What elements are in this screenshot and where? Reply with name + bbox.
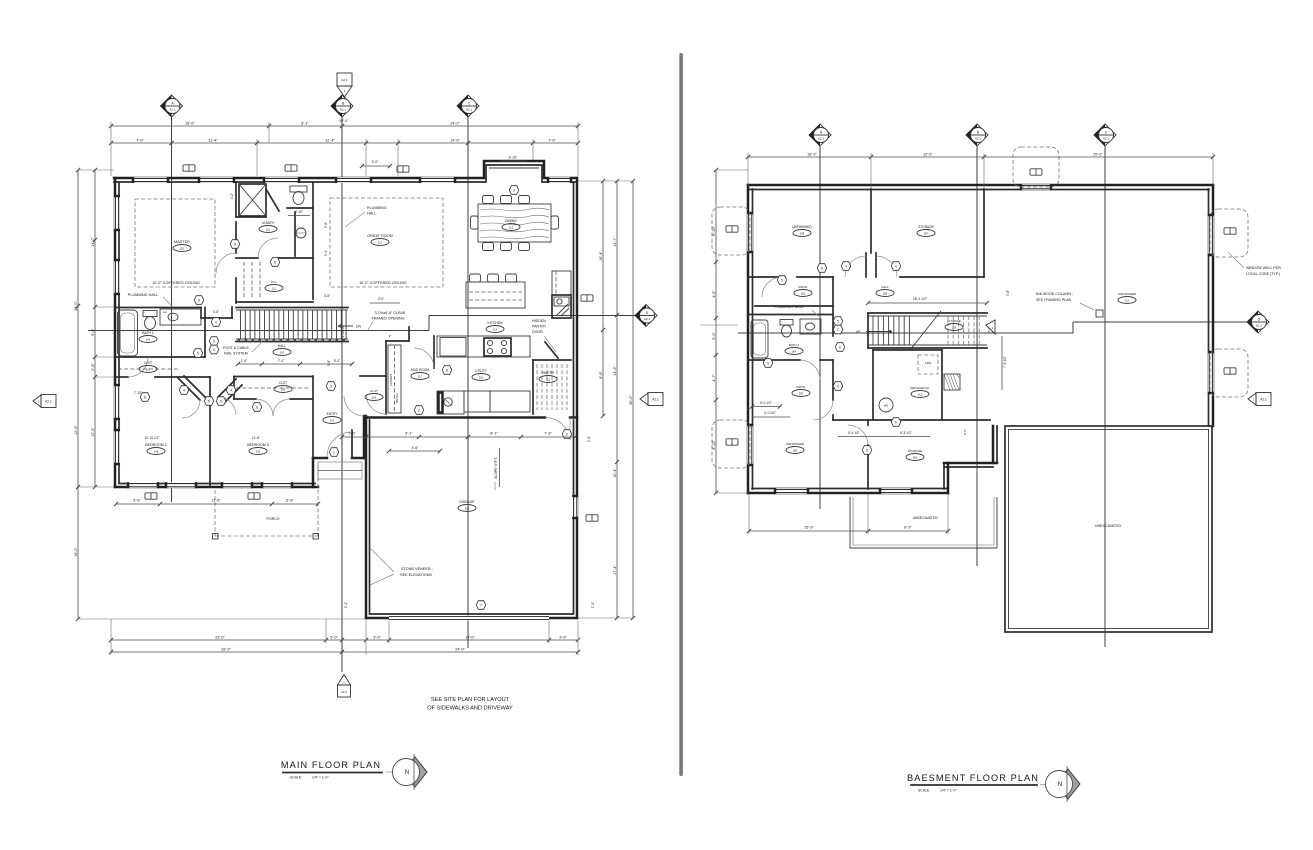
svg-text:112: 112: [378, 240, 383, 244]
svg-text:A2.1: A2.1: [975, 137, 982, 141]
svg-text:5'-0": 5'-0": [91, 328, 95, 336]
svg-text:2: 2: [566, 432, 568, 436]
svg-text:UNDECAVATED: UNDECAVATED: [913, 516, 938, 520]
svg-text:10'-10 1/2": 10'-10 1/2": [144, 436, 159, 440]
svg-text:7'-10": 7'-10": [134, 391, 142, 395]
svg-text:MIR: MIR: [163, 312, 167, 314]
svg-text:MECHANICAL: MECHANICAL: [910, 386, 930, 390]
svg-text:106: 106: [281, 387, 286, 391]
svg-text:6: 6: [256, 405, 258, 409]
svg-text:SEE FRAMING PLAN: SEE FRAMING PLAN: [1036, 298, 1072, 302]
svg-text:2'-4": 2'-4": [344, 602, 348, 608]
svg-text:CLST: CLST: [370, 389, 378, 393]
svg-text:OF SIDEWALKS AND DRIVEWAY: OF SIDEWALKS AND DRIVEWAY: [427, 706, 513, 712]
svg-text:24'-2": 24'-2": [450, 122, 460, 126]
svg-text:A2.1: A2.1: [45, 400, 52, 404]
svg-text:1: 1: [333, 450, 335, 454]
svg-text:5: 5: [213, 339, 215, 343]
svg-text:8'-8": 8'-8": [599, 371, 603, 379]
svg-text:105: 105: [256, 449, 261, 453]
svg-text:UNFINISHED: UNFINISHED: [786, 442, 805, 446]
svg-text:009: 009: [883, 291, 888, 295]
svg-text:SCALE:: SCALE:: [918, 789, 930, 793]
svg-text:5: 5: [208, 399, 210, 403]
svg-text:3'-8": 3'-8": [324, 222, 328, 228]
svg-text:50'-0": 50'-0": [629, 395, 633, 405]
svg-text:2: 2: [418, 408, 420, 412]
svg-text:4'-7": 4'-7": [712, 374, 716, 382]
svg-text:18'-0": 18'-0": [185, 122, 195, 126]
svg-text:5: 5: [781, 278, 783, 282]
svg-text:GARAGE: GARAGE: [459, 500, 475, 504]
svg-text:24'-0": 24'-0": [455, 648, 465, 652]
svg-text:110: 110: [266, 227, 271, 231]
svg-text:3'-0⅛x6'-8" CLEAR: 3'-0⅛x6'-8" CLEAR: [375, 311, 406, 315]
svg-text:18'-1 1/2": 18'-1 1/2": [913, 297, 928, 301]
svg-text:8'-9": 8'-9": [904, 526, 912, 530]
svg-text:28'-0": 28'-0": [221, 648, 231, 652]
svg-text:14'-3": 14'-3": [613, 366, 617, 376]
svg-text:3'-8": 3'-8": [324, 294, 330, 298]
svg-text:007: 007: [924, 231, 929, 235]
svg-text:8'-5 1/2": 8'-5 1/2": [900, 431, 912, 435]
svg-text:4: 4: [215, 320, 217, 324]
svg-text:6: 6: [837, 384, 839, 388]
svg-text:UNFIN.: UNFIN.: [798, 285, 808, 289]
svg-text:GREAT ROOM: GREAT ROOM: [367, 234, 393, 238]
svg-text:52'-0": 52'-0": [339, 119, 349, 123]
svg-text:5: 5: [197, 351, 199, 355]
svg-text:MUD ROOM: MUD ROOM: [411, 368, 429, 372]
svg-text:18'-0": 18'-0": [465, 636, 475, 640]
svg-text:005: 005: [801, 291, 806, 295]
svg-text:4: 4: [230, 388, 232, 392]
svg-text:RAIL SYSTEM: RAIL SYSTEM: [224, 352, 248, 356]
svg-text:A2.1: A2.1: [818, 137, 825, 141]
svg-text:5: 5: [767, 361, 769, 365]
svg-text:10'-4": 10'-4": [613, 468, 617, 478]
svg-text:LOCKERS: LOCKERS: [389, 374, 393, 387]
svg-text:8'-1": 8'-1": [490, 432, 498, 436]
svg-text:107: 107: [146, 367, 151, 371]
svg-text:3'-8": 3'-8": [1006, 290, 1010, 296]
svg-text:A2.1: A2.1: [340, 108, 347, 112]
svg-text:12'-5": 12'-5": [923, 153, 933, 157]
svg-text:5'-8": 5'-8": [286, 499, 294, 503]
svg-text:12'-4": 12'-4": [325, 139, 335, 143]
svg-text:003: 003: [799, 391, 804, 395]
svg-text:1/4" = 1'-0": 1/4" = 1'-0": [940, 789, 957, 793]
svg-text:117: 117: [418, 374, 423, 378]
svg-text:10'-0" COFFERED CEILING: 10'-0" COFFERED CEILING: [152, 281, 200, 285]
svg-text:BAESMENT FLOOR PLAN: BAESMENT FLOOR PLAN: [907, 773, 1039, 783]
svg-text:UNFINISHED: UNFINISHED: [792, 225, 812, 229]
svg-text:A2.1: A2.1: [466, 108, 473, 112]
svg-text:HIDDEN: HIDDEN: [532, 319, 546, 323]
svg-text:5: 5: [330, 384, 332, 388]
svg-text:DOOR: DOOR: [532, 330, 543, 334]
svg-text:BEDROOM 3: BEDROOM 3: [247, 443, 269, 447]
svg-text:PANTRY: PANTRY: [532, 325, 547, 329]
svg-text:6'-1": 6'-1": [405, 432, 413, 436]
svg-text:N: N: [405, 770, 409, 776]
svg-text:23'-0": 23'-0": [215, 636, 225, 640]
svg-text:002: 002: [793, 448, 798, 452]
svg-text:M.BATH: M.BATH: [262, 221, 275, 225]
svg-text:17'-4": 17'-4": [613, 565, 617, 575]
svg-text:4: 4: [895, 264, 897, 268]
svg-text:KITCHEN: KITCHEN: [488, 321, 503, 325]
svg-text:11'-8": 11'-8": [252, 436, 260, 440]
svg-text:101: 101: [180, 246, 185, 250]
svg-text:5'-0 1/2": 5'-0 1/2": [760, 401, 772, 405]
svg-text:15'-9": 15'-9": [804, 526, 814, 530]
svg-text:102: 102: [372, 395, 377, 399]
svg-text:5: 5: [821, 266, 823, 270]
svg-text:111: 111: [1125, 298, 1129, 302]
svg-text:STONE VENEER -: STONE VENEER -: [401, 567, 434, 571]
svg-text:2'-4": 2'-4": [591, 602, 595, 608]
svg-text:PLUMBING WALL: PLUMBING WALL: [774, 305, 803, 309]
svg-text:115: 115: [546, 377, 551, 381]
svg-text:25'-0": 25'-0": [1093, 153, 1103, 157]
svg-text:BENCH: BENCH: [395, 393, 399, 402]
svg-text:FRN: FRN: [925, 361, 931, 365]
svg-text:CLST: CLST: [279, 381, 287, 385]
svg-text:6'-10": 6'-10": [509, 156, 518, 160]
svg-text:36'-0": 36'-0": [74, 301, 78, 311]
svg-text:A2.1: A2.1: [652, 398, 659, 402]
svg-text:5: 5: [837, 319, 839, 323]
svg-text:MAIN FLOOR PLAN: MAIN FLOOR PLAN: [281, 760, 381, 770]
svg-text:1'-4": 1'-4": [241, 359, 247, 363]
svg-text:012: 012: [918, 392, 923, 396]
svg-text:7'-0": 7'-0": [136, 139, 144, 143]
svg-text:3'-0": 3'-0": [378, 297, 384, 301]
svg-text:11'-8": 11'-8": [211, 499, 221, 503]
svg-text:6: 6: [895, 420, 897, 424]
svg-text:3'-0": 3'-0": [372, 160, 380, 164]
svg-text:PLUMBING HALL: PLUMBING HALL: [128, 293, 158, 297]
svg-text:5'-0": 5'-0": [712, 332, 716, 340]
svg-text:BATH 2: BATH 2: [789, 343, 800, 347]
svg-text:12'-5": 12'-5": [91, 427, 95, 437]
svg-text:A2.1: A2.1: [341, 690, 348, 694]
svg-text:6: 6: [144, 395, 146, 399]
svg-text:114: 114: [493, 327, 498, 331]
svg-text:UNFIN.: UNFIN.: [796, 385, 806, 389]
svg-text:118: 118: [465, 506, 470, 510]
svg-text:103: 103: [280, 350, 285, 354]
svg-text:DN: DN: [356, 325, 361, 329]
svg-text:POST & CABLE: POST & CABLE: [223, 346, 250, 350]
svg-text:15'-0": 15'-0": [74, 547, 78, 557]
svg-text:5: 5: [198, 298, 200, 302]
svg-text:6x6 WOOD COLUMN -: 6x6 WOOD COLUMN -: [1036, 292, 1074, 296]
svg-text:W.C.: W.C.: [271, 280, 278, 284]
svg-text:3'-6": 3'-6": [213, 310, 219, 314]
svg-text:7: 7: [480, 603, 482, 607]
svg-text:3'-0 1/2": 3'-0 1/2": [764, 411, 776, 415]
svg-text:11'-4": 11'-4": [208, 139, 218, 143]
svg-text:UTILITY: UTILITY: [475, 369, 488, 373]
svg-text:A2.1: A2.1: [341, 78, 348, 82]
svg-text:4: 4: [183, 388, 185, 392]
svg-text:7'-0": 7'-0": [278, 359, 284, 363]
svg-text:FRAMED OPENING: FRAMED OPENING: [372, 317, 405, 321]
svg-text:8: 8: [446, 368, 448, 372]
svg-text:DINING: DINING: [505, 219, 517, 223]
svg-text:STORAGE: STORAGE: [947, 319, 961, 323]
svg-text:UNEXCAVATED: UNEXCAVATED: [1095, 524, 1122, 528]
svg-text:3'-8": 3'-8": [327, 360, 331, 366]
svg-text:HALL: HALL: [367, 212, 377, 216]
svg-text:101: 101: [330, 418, 335, 422]
svg-text:5: 5: [220, 399, 222, 403]
svg-text:STORAGE: STORAGE: [908, 449, 923, 453]
svg-text:004: 004: [792, 349, 797, 353]
svg-text:3": 3": [389, 334, 392, 338]
svg-text:SEE SITE PLAN FOR LAYOUT: SEE SITE PLAN FOR LAYOUT: [431, 697, 510, 703]
svg-text:A2.1: A2.1: [1103, 137, 1110, 141]
svg-text:CLST: CLST: [144, 361, 152, 365]
svg-text:3'-4": 3'-4": [324, 250, 328, 256]
svg-text:4'-6": 4'-6": [412, 446, 420, 450]
svg-text:113: 113: [509, 225, 514, 229]
svg-text:LOCAL CODE (TYP.): LOCAL CODE (TYP.): [1246, 272, 1280, 276]
svg-text:WH: WH: [884, 404, 888, 408]
svg-text:8'-1": 8'-1": [301, 122, 309, 126]
svg-text:1'-0": 1'-0": [348, 432, 356, 436]
svg-text:PORCH: PORCH: [267, 517, 280, 521]
svg-text:2'-10": 2'-10": [295, 210, 303, 214]
svg-text:14'-0": 14'-0": [91, 237, 95, 247]
svg-text:1/4" = 1'-0": 1/4" = 1'-0": [312, 776, 329, 780]
svg-text:2'-8": 2'-8": [91, 363, 95, 371]
svg-text:STORAGE: STORAGE: [918, 225, 934, 229]
svg-text:5: 5: [234, 242, 236, 246]
svg-text:14'-7": 14'-7": [613, 237, 617, 247]
svg-text:2'-0": 2'-0": [587, 436, 591, 442]
svg-text:SCALE:: SCALE:: [290, 776, 302, 780]
svg-text:6'-10": 6'-10": [712, 440, 716, 450]
svg-text:7'-3": 7'-3": [544, 432, 552, 436]
svg-text:MASTER: MASTER: [174, 240, 190, 244]
svg-text:001: 001: [913, 455, 918, 459]
svg-text:108: 108: [154, 449, 159, 453]
svg-text:111: 111: [272, 286, 276, 290]
svg-text:3: 3: [513, 188, 515, 192]
svg-text:5'-4 1/2": 5'-4 1/2": [848, 431, 860, 435]
svg-text:5: 5: [274, 260, 276, 264]
svg-text:BEDROOM 2: BEDROOM 2: [145, 443, 167, 447]
svg-text:7'-8 1/2": 7'-8 1/2": [1003, 356, 1007, 368]
svg-text:6'-10": 6'-10": [712, 226, 716, 236]
svg-text:4'-2": 4'-2": [230, 193, 234, 199]
svg-text:5'-8": 5'-8": [133, 499, 141, 503]
svg-text:A2.1: A2.1: [1256, 324, 1263, 328]
svg-text:16'-4": 16'-4": [599, 251, 603, 261]
svg-text:3'-0": 3'-0": [559, 636, 567, 640]
svg-text:12'-5": 12'-5": [74, 425, 78, 435]
svg-text:5'-0": 5'-0": [963, 429, 967, 435]
svg-text:14'-0": 14'-0": [450, 139, 460, 143]
svg-text:N: N: [1058, 782, 1062, 788]
svg-text:PANTRY: PANTRY: [542, 371, 556, 375]
svg-text:4: 4: [845, 264, 847, 268]
svg-text:5'-0": 5'-0": [330, 636, 338, 640]
svg-text:A2.1: A2.1: [1260, 398, 1267, 402]
svg-text:SEE ELEVATIONS: SEE ELEVATIONS: [400, 573, 432, 577]
svg-text:008: 008: [800, 231, 805, 235]
svg-text:SLOPE ½"/FT.: SLOPE ½"/FT.: [494, 457, 498, 479]
svg-text:7'-0": 7'-0": [548, 139, 556, 143]
svg-text:ENTRY: ENTRY: [327, 412, 339, 416]
svg-text:18'-9": 18'-9": [807, 153, 817, 157]
svg-text:10'-0" COFFERED CEILING: 10'-0" COFFERED CEILING: [359, 281, 407, 285]
svg-text:A2.1: A2.1: [644, 317, 651, 321]
svg-text:5'-4": 5'-4": [334, 359, 340, 363]
svg-text:HALL: HALL: [881, 285, 889, 289]
svg-text:6: 6: [839, 345, 841, 349]
svg-text:116: 116: [479, 375, 484, 379]
svg-text:104: 104: [146, 337, 151, 341]
svg-text:3'-0": 3'-0": [373, 636, 381, 640]
svg-text:PLUMBING: PLUMBING: [367, 206, 387, 210]
svg-text:A2.1: A2.1: [169, 108, 176, 112]
svg-text:4'-5": 4'-5": [712, 290, 716, 298]
svg-text:5: 5: [866, 448, 868, 452]
svg-text:WINDOW WELL PER: WINDOW WELL PER: [1246, 266, 1281, 270]
svg-text:BATH 1: BATH 1: [142, 331, 154, 335]
svg-text:UP: UP: [856, 330, 860, 334]
svg-text:005: 005: [952, 325, 957, 329]
svg-text:HALL: HALL: [278, 344, 286, 348]
svg-text:9'-10 1/2": 9'-10 1/2": [341, 325, 345, 338]
svg-text:UNFINISHED: UNFINISHED: [1118, 292, 1137, 296]
